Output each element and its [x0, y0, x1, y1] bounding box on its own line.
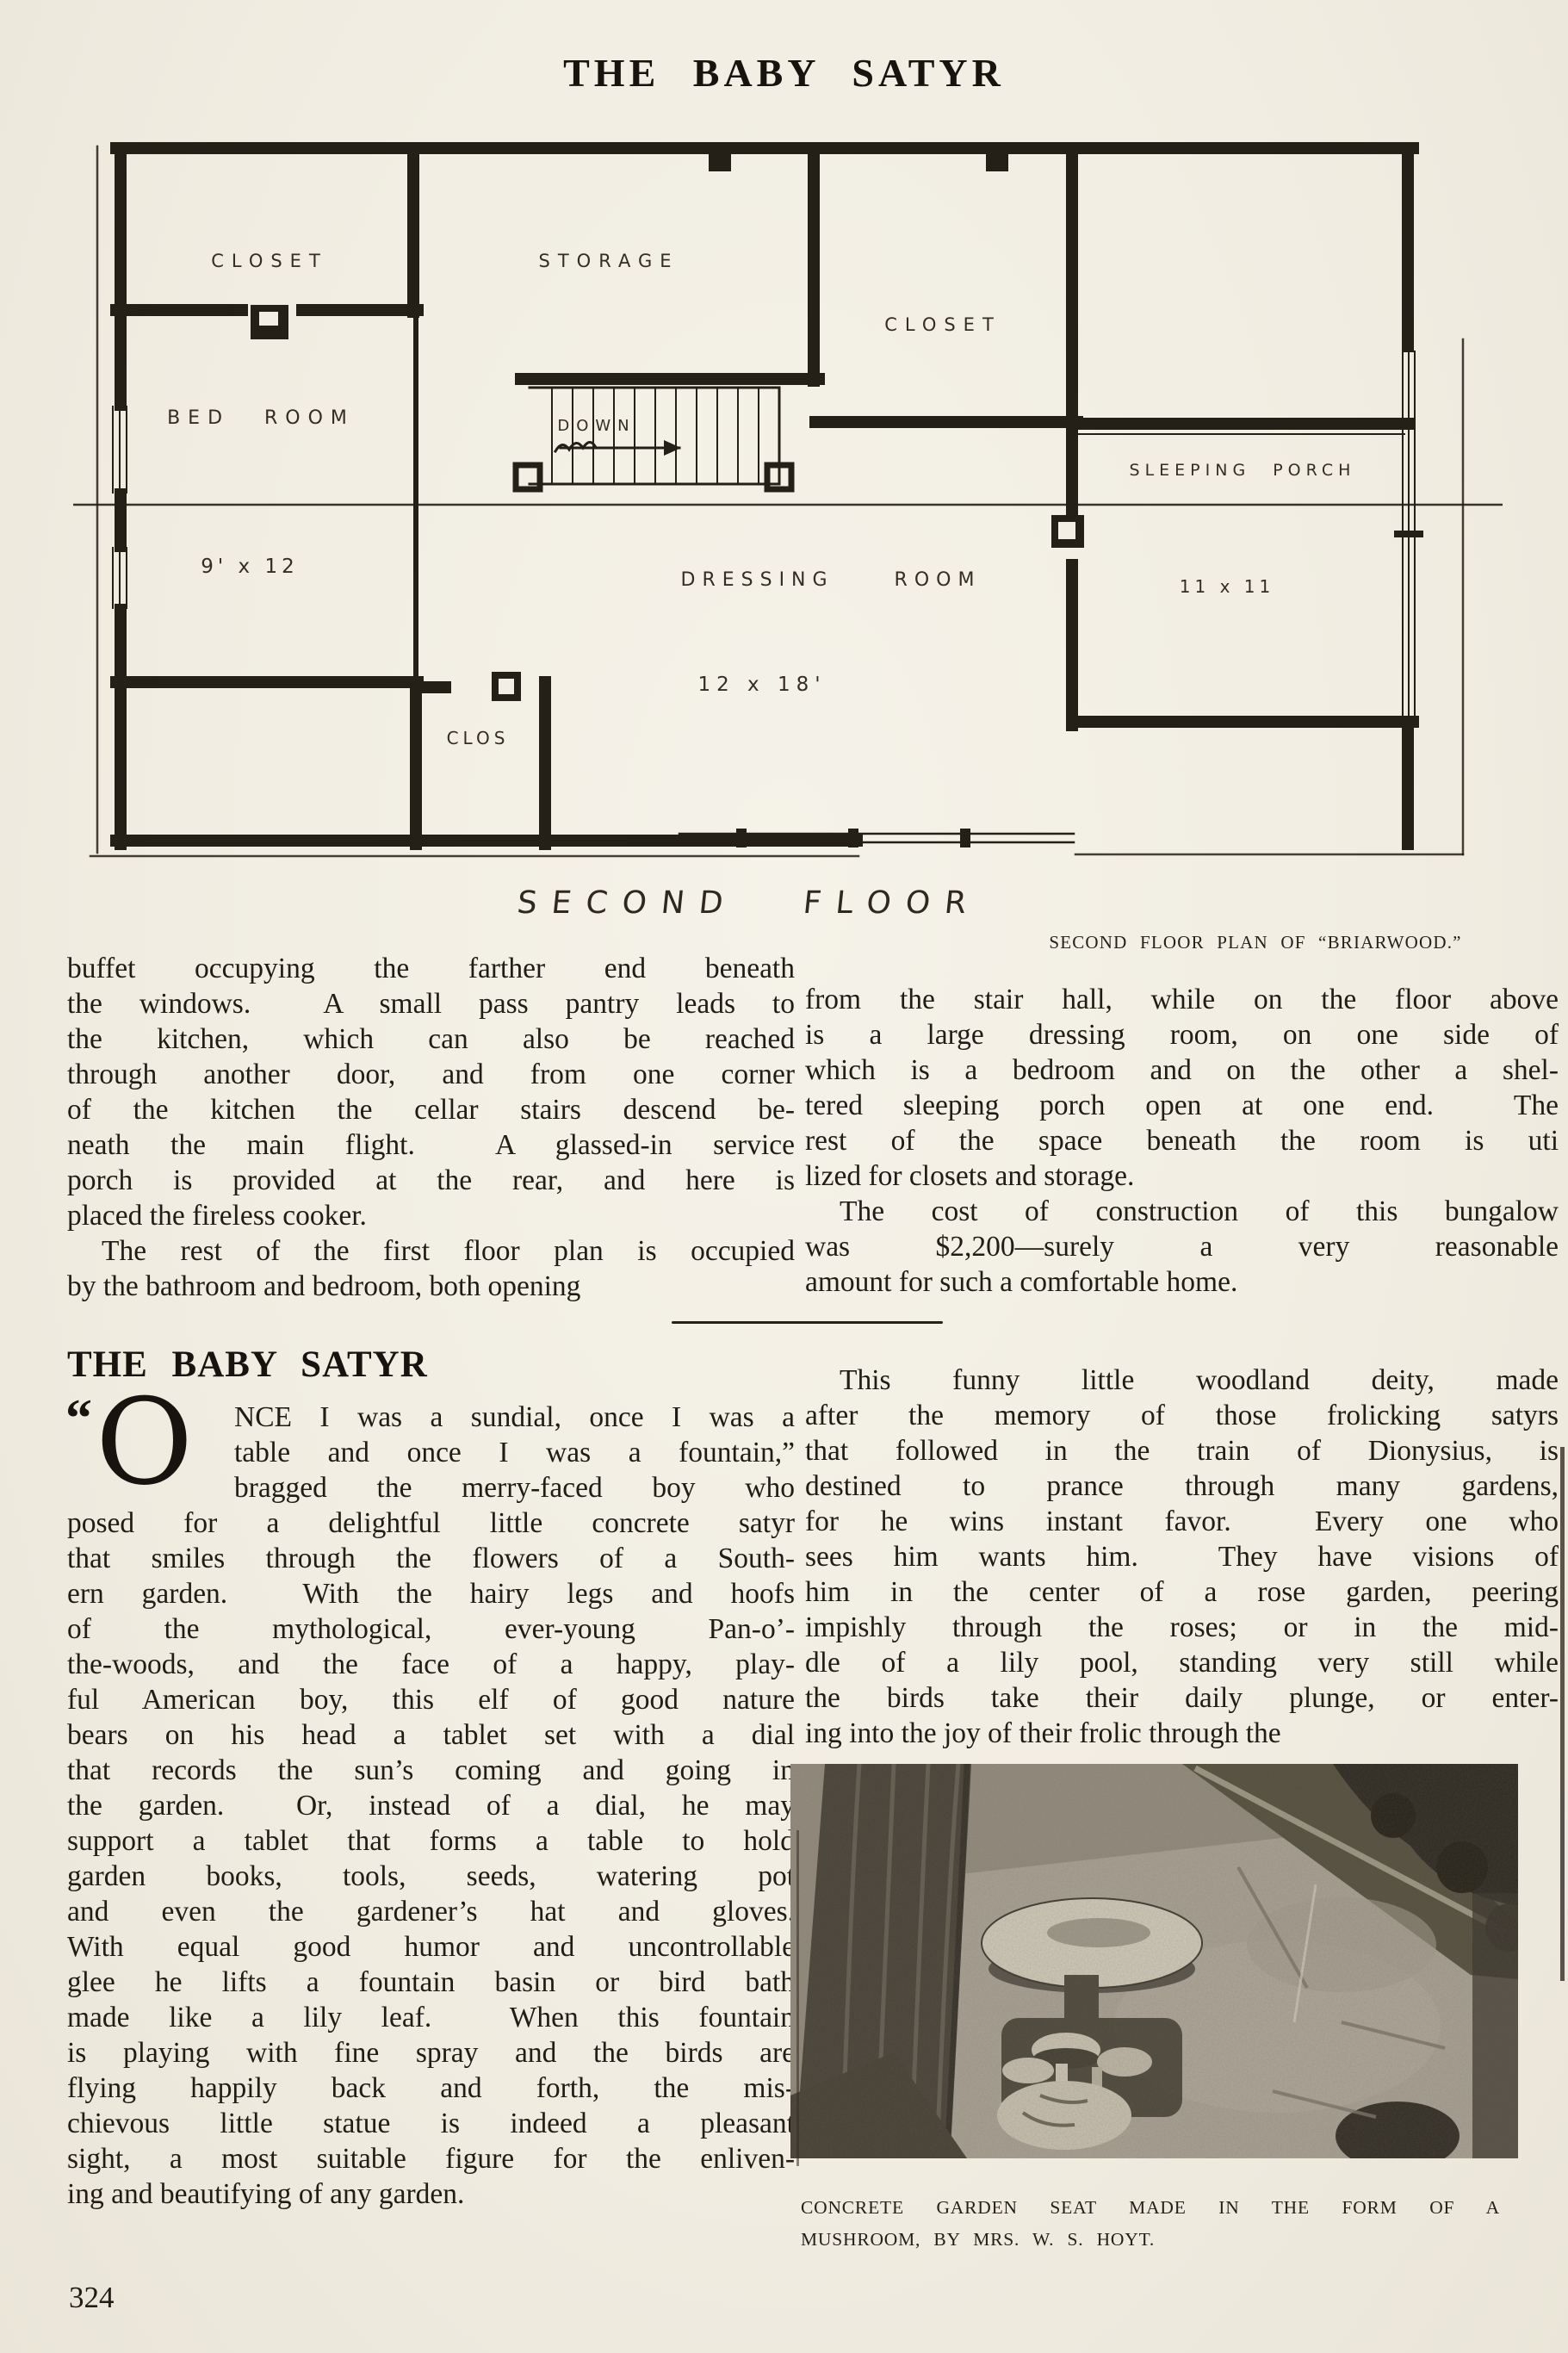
text-line: that followed in the train of Dionysius,…: [805, 1433, 1559, 1468]
photo-caption: CONCRETE GARDEN SEAT MADE IN THE FORM OF…: [801, 2192, 1500, 2256]
text-line: is a large dressing room, on one side of: [805, 1017, 1559, 1052]
text-line: This funny little woodland deity, made: [805, 1363, 1559, 1398]
photo-caption-line: CONCRETE GARDEN SEAT MADE IN THE FORM OF…: [801, 2192, 1500, 2224]
text-line: through another door, and from one corne…: [67, 1057, 795, 1092]
text-line: ing into the joy of their frolic through…: [805, 1716, 1559, 1751]
text-line: which is a bedroom and on the other a sh…: [805, 1052, 1559, 1088]
text-line: bragged the merry-faced boy who: [67, 1470, 795, 1506]
text-line: NCE I was a sundial, once I was a: [67, 1400, 795, 1435]
text-line: that smiles through the flowers of a Sou…: [67, 1541, 795, 1576]
plan-label-storage: STORAGE: [539, 251, 679, 271]
text-line: of the mythological, ever-young Pan-o’-: [67, 1611, 795, 1647]
text-line: the-woods, and the face of a happy, play…: [67, 1647, 795, 1682]
plan-label-down: DOWN: [557, 417, 635, 435]
text-line: garden books, tools, seeds, watering pot: [67, 1859, 795, 1894]
right-column-top: from the stair hall, while on the floor …: [805, 982, 1559, 1300]
text-line: posed for a delightful little concrete s…: [67, 1506, 795, 1541]
text-line: the birds take their daily plunge, or en…: [805, 1680, 1559, 1716]
photo-caption-line: MUSHROOM, BY MRS. W. S. HOYT.: [801, 2224, 1500, 2256]
plan-label-closet-right: CLOSET: [884, 314, 1001, 335]
text-line: is playing with fine spray and the birds…: [67, 2035, 795, 2071]
floor-plan-drawing: CLOSET STORAGE CLOSET BED ROOM 9' x 12 D…: [73, 129, 1503, 887]
text-line: lized for closets and storage.: [805, 1158, 1559, 1194]
plan-label-dressing-room: DRESSING ROOM: [681, 569, 982, 591]
text-line: table and once I was a fountain,”: [67, 1435, 795, 1470]
text-line: destined to prance through many gardens,: [805, 1468, 1559, 1504]
section-divider-rule: [672, 1321, 943, 1324]
text-line: The rest of the first floor plan is occu…: [67, 1233, 795, 1269]
garden-seat-photo-image: [790, 1764, 1518, 2158]
text-line: placed the fireless cooker.: [67, 1198, 795, 1233]
text-line: rest of the space beneath the room is ut…: [805, 1123, 1559, 1158]
plan-label-bed-dim: 9' x 12: [201, 556, 298, 578]
left-column-body: NCE I was a sundial, once I was atable a…: [67, 1400, 795, 2212]
text-line: by the bathroom and bedroom, both openin…: [67, 1269, 795, 1304]
text-line: made like a lily leaf. When this fountai…: [67, 2000, 795, 2035]
text-line: flying happily back and forth, the mis-: [67, 2071, 795, 2106]
text-line: ing and beautifying of any garden.: [67, 2176, 795, 2212]
text-line: ern garden. With the hairy legs and hoof…: [67, 1576, 795, 1611]
text-line: chievous little statue is indeed a pleas…: [67, 2106, 795, 2141]
text-line: sees him wants him. They have visions of: [805, 1539, 1559, 1574]
plan-caption: SECOND FLOOR PLAN OF “BRIARWOOD.”: [971, 932, 1540, 953]
page-edge-scan-artifact: [1560, 1447, 1565, 1981]
text-line: was $2,200—surely a very reasonable: [805, 1229, 1559, 1264]
text-line: With equal good humor and uncontrollable: [67, 1929, 795, 1965]
text-line: ful American boy, this elf of good natur…: [67, 1682, 795, 1717]
plan-label-sleeping-porch: SLEEPING PORCH: [1130, 461, 1356, 480]
text-line: and even the gardener’s hat and gloves.: [67, 1894, 795, 1929]
text-line: bears on his head a tablet set with a di…: [67, 1717, 795, 1753]
plan-label-porch-dim: 11 x 11: [1180, 576, 1274, 597]
plan-floor-label: SECOND FLOOR: [403, 885, 1095, 921]
plan-label-clos: CLOS: [447, 728, 510, 748]
text-line: dle of a lily pool, standing very still …: [805, 1645, 1559, 1680]
floor-plan: CLOSET STORAGE CLOSET BED ROOM 9' x 12 D…: [73, 129, 1503, 896]
text-line: support a tablet that forms a table to h…: [67, 1823, 795, 1859]
garden-seat-photo: [790, 1764, 1518, 2158]
text-line: buffet occupying the farther end beneath: [67, 951, 795, 986]
text-line: glee he lifts a fountain basin or bird b…: [67, 1965, 795, 2000]
text-line: the garden. Or, instead of a dial, he ma…: [67, 1788, 795, 1823]
text-line: porch is provided at the rear, and here …: [67, 1163, 795, 1198]
text-line: that records the sun’s coming and going …: [67, 1753, 795, 1788]
text-line: from the stair hall, while on the floor …: [805, 982, 1559, 1017]
plan-label-dressing-dim: 12 x 18': [697, 674, 826, 696]
text-line: him in the center of a rose garden, peer…: [805, 1574, 1559, 1610]
left-column-top: buffet occupying the farther end beneath…: [67, 951, 795, 1304]
text-line: neath the main flight. A glassed-in serv…: [67, 1127, 795, 1163]
text-line: after the memory of those frolicking sat…: [805, 1398, 1559, 1433]
text-line: sight, a most suitable figure for the en…: [67, 2141, 795, 2176]
plan-label-closet-left: CLOSET: [211, 251, 328, 271]
text-line: for he wins instant favor. Every one who: [805, 1504, 1559, 1539]
right-column-body: This funny little woodland deity, madeaf…: [805, 1363, 1559, 1751]
page-number: 324: [69, 2281, 115, 2315]
text-line: of the kitchen the cellar stairs descend…: [67, 1092, 795, 1127]
text-line: the windows. A small pass pantry leads t…: [67, 986, 795, 1021]
text-line: the kitchen, which can also be reached: [67, 1021, 795, 1057]
magazine-page: THE BABY SATYR: [0, 0, 1568, 2353]
gutter-scan-artifact: [796, 1830, 799, 2166]
text-line: amount for such a comfortable home.: [805, 1264, 1559, 1300]
page-title: THE BABY SATYR: [0, 50, 1568, 96]
text-line: The cost of construction of this bungalo…: [805, 1194, 1559, 1229]
text-line: impishly through the roses; or in the mi…: [805, 1610, 1559, 1645]
text-line: tered sleeping porch open at one end. Th…: [805, 1088, 1559, 1123]
plan-label-bed-room: BED ROOM: [167, 407, 355, 429]
